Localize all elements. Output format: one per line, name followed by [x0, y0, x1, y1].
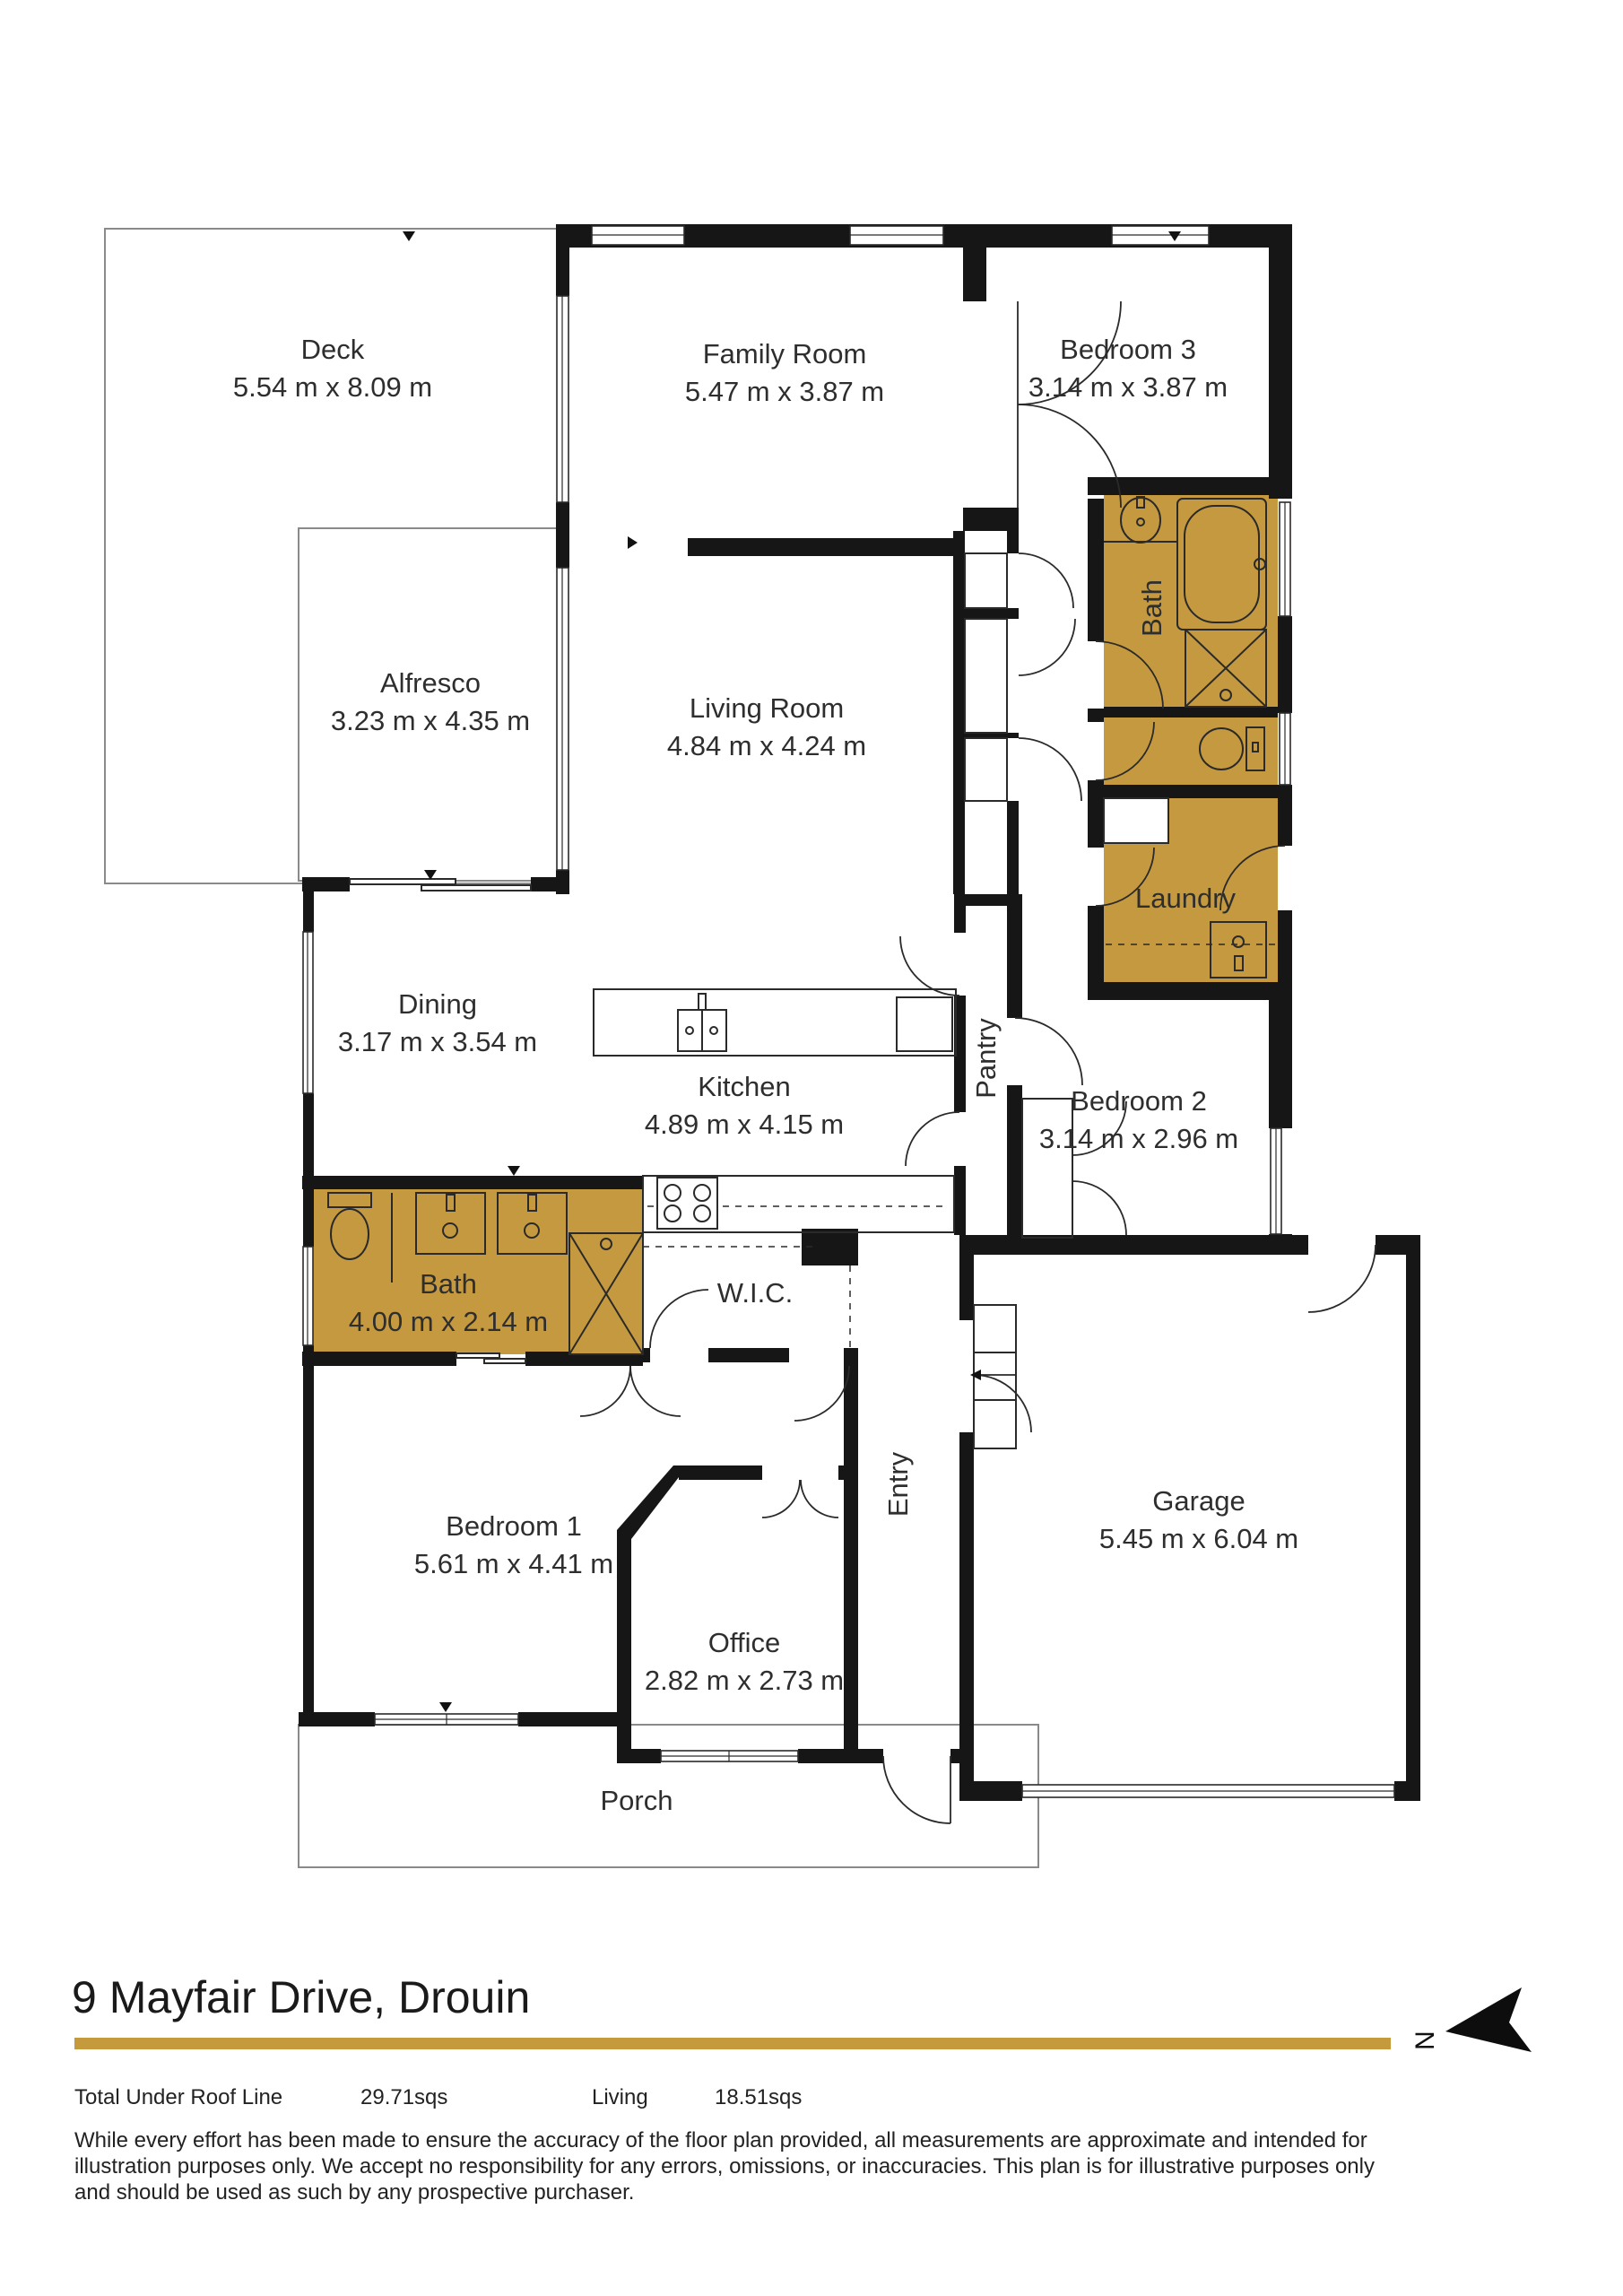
- room-garage: Garage5.45 m x 6.04 m: [1099, 1485, 1298, 1554]
- linen-closet: [965, 553, 1007, 608]
- shower: [569, 1233, 643, 1354]
- room-name: Living Room: [690, 692, 844, 724]
- north-label: N: [1410, 2031, 1440, 2050]
- window: [375, 1714, 518, 1725]
- room-name: Garage: [1152, 1485, 1245, 1517]
- floorplan-page: Deck5.54 m x 8.09 m Family Room5.47 m x …: [0, 0, 1623, 2296]
- room-bath-ensuite: Bath: [1136, 579, 1167, 637]
- room-living: Living Room4.84 m x 4.24 m: [667, 692, 866, 761]
- window: [303, 1247, 313, 1345]
- room-name: Office: [708, 1627, 780, 1658]
- page-title: 9 Mayfair Drive, Drouin: [72, 1971, 530, 2023]
- bathtub: [1177, 499, 1266, 630]
- area-summary: Total Under Roof Line 29.71sqs Living 18…: [0, 2085, 1623, 2112]
- stairs: [970, 1305, 1016, 1448]
- total-roof-label: Total Under Roof Line: [74, 2085, 282, 2110]
- linen-closet: [965, 619, 1007, 733]
- kitchen-island: [594, 989, 956, 1056]
- total-roof-value: 29.71sqs: [360, 2085, 447, 2110]
- window: [1280, 502, 1290, 616]
- cooktop: [657, 1178, 717, 1229]
- bedroom2-wardrobe: [1022, 1099, 1072, 1238]
- window: [1280, 713, 1290, 785]
- door-arc: [1308, 1245, 1376, 1312]
- room-dims: 4.89 m x 4.15 m: [645, 1109, 844, 1140]
- disclaimer-text: While every effort has been made to ensu…: [74, 2127, 1379, 2205]
- shower: [1185, 630, 1266, 707]
- room-name: Deck: [301, 334, 365, 365]
- room-name: Bath: [1136, 579, 1167, 637]
- room-dining: Dining3.17 m x 3.54 m: [338, 988, 537, 1057]
- wardrobe-arc: [580, 1366, 630, 1416]
- door-arc: [762, 1480, 800, 1518]
- room-name: Laundry: [1135, 883, 1237, 914]
- door-arc: [974, 1375, 1031, 1432]
- accent-rule: [74, 2038, 1391, 2049]
- room-bedroom2: Bedroom 23.14 m x 2.96 m: [1039, 1085, 1238, 1154]
- room-bedroom1: Bedroom 15.61 m x 4.41 m: [414, 1510, 613, 1579]
- laundry-bench: [1104, 798, 1168, 843]
- room-laundry: Laundry: [1135, 883, 1237, 914]
- room-dims: 5.61 m x 4.41 m: [414, 1548, 613, 1579]
- closet-door-arc: [1019, 738, 1081, 801]
- room-name: Bedroom 1: [446, 1510, 582, 1542]
- wardrobe-arc: [1072, 1181, 1126, 1235]
- window: [557, 296, 568, 502]
- window: [1271, 1128, 1281, 1234]
- room-dims: 4.84 m x 4.24 m: [667, 730, 866, 761]
- wardrobe-arc: [630, 1366, 681, 1416]
- window: [303, 932, 313, 1093]
- door-arc: [906, 1112, 959, 1166]
- window: [592, 226, 684, 245]
- door-arc: [1015, 1018, 1082, 1085]
- door-arc: [794, 1366, 849, 1421]
- room-dims: 2.82 m x 2.73 m: [645, 1665, 844, 1696]
- room-bedroom3: Bedroom 33.14 m x 3.87 m: [1028, 334, 1228, 403]
- room-name: Pantry: [970, 1018, 1002, 1099]
- room-kitchen: Kitchen4.89 m x 4.15 m: [645, 1071, 844, 1140]
- room-wic: W.I.C.: [717, 1277, 793, 1309]
- room-name: Kitchen: [698, 1071, 790, 1102]
- room-name: Bedroom 3: [1060, 334, 1196, 365]
- room-entry: Entry: [882, 1451, 914, 1517]
- room-dims: 4.00 m x 2.14 m: [349, 1306, 548, 1337]
- room-dims: 3.17 m x 3.54 m: [338, 1026, 537, 1057]
- garage-door: [1022, 1785, 1394, 1797]
- closet-door-arc: [1019, 619, 1075, 675]
- outdoor-areas: [105, 229, 1038, 1867]
- door-arc: [801, 1480, 838, 1518]
- living-label: Living: [592, 2085, 648, 2110]
- room-name: Entry: [882, 1451, 914, 1517]
- room-name: Bedroom 2: [1071, 1085, 1207, 1117]
- room-pantry: Pantry: [970, 1018, 1002, 1099]
- floor-plan: Deck5.54 m x 8.09 m Family Room5.47 m x …: [0, 0, 1623, 1955]
- room-dims: 3.14 m x 3.87 m: [1028, 371, 1228, 403]
- north-arrow-icon: N: [1394, 1971, 1565, 2079]
- room-dims: 5.45 m x 6.04 m: [1099, 1523, 1298, 1554]
- room-name: W.I.C.: [717, 1277, 793, 1309]
- room-dims: 3.14 m x 2.96 m: [1039, 1123, 1238, 1154]
- room-office: Office2.82 m x 2.73 m: [645, 1627, 844, 1696]
- room-name: Dining: [398, 988, 477, 1020]
- room-name: Bath: [420, 1268, 477, 1300]
- door-arc: [900, 936, 959, 996]
- room-porch: Porch: [601, 1785, 673, 1816]
- room-dims: 5.54 m x 8.09 m: [233, 371, 432, 403]
- door-arc: [650, 1290, 708, 1348]
- room-dims: 3.23 m x 4.35 m: [331, 705, 530, 736]
- window: [661, 1751, 798, 1761]
- room-name: Family Room: [703, 338, 867, 370]
- window: [1112, 226, 1209, 245]
- room-dims: 5.47 m x 3.87 m: [685, 376, 884, 407]
- room-name: Alfresco: [380, 667, 481, 699]
- linen-closet: [965, 738, 1007, 801]
- kitchen-bench: [643, 1176, 954, 1232]
- closet-door-arc: [1019, 553, 1073, 608]
- room-family: Family Room5.47 m x 3.87 m: [685, 338, 884, 407]
- window: [850, 226, 943, 245]
- window: [557, 568, 568, 870]
- living-value: 18.51sqs: [715, 2085, 802, 2110]
- room-name: Porch: [601, 1785, 673, 1816]
